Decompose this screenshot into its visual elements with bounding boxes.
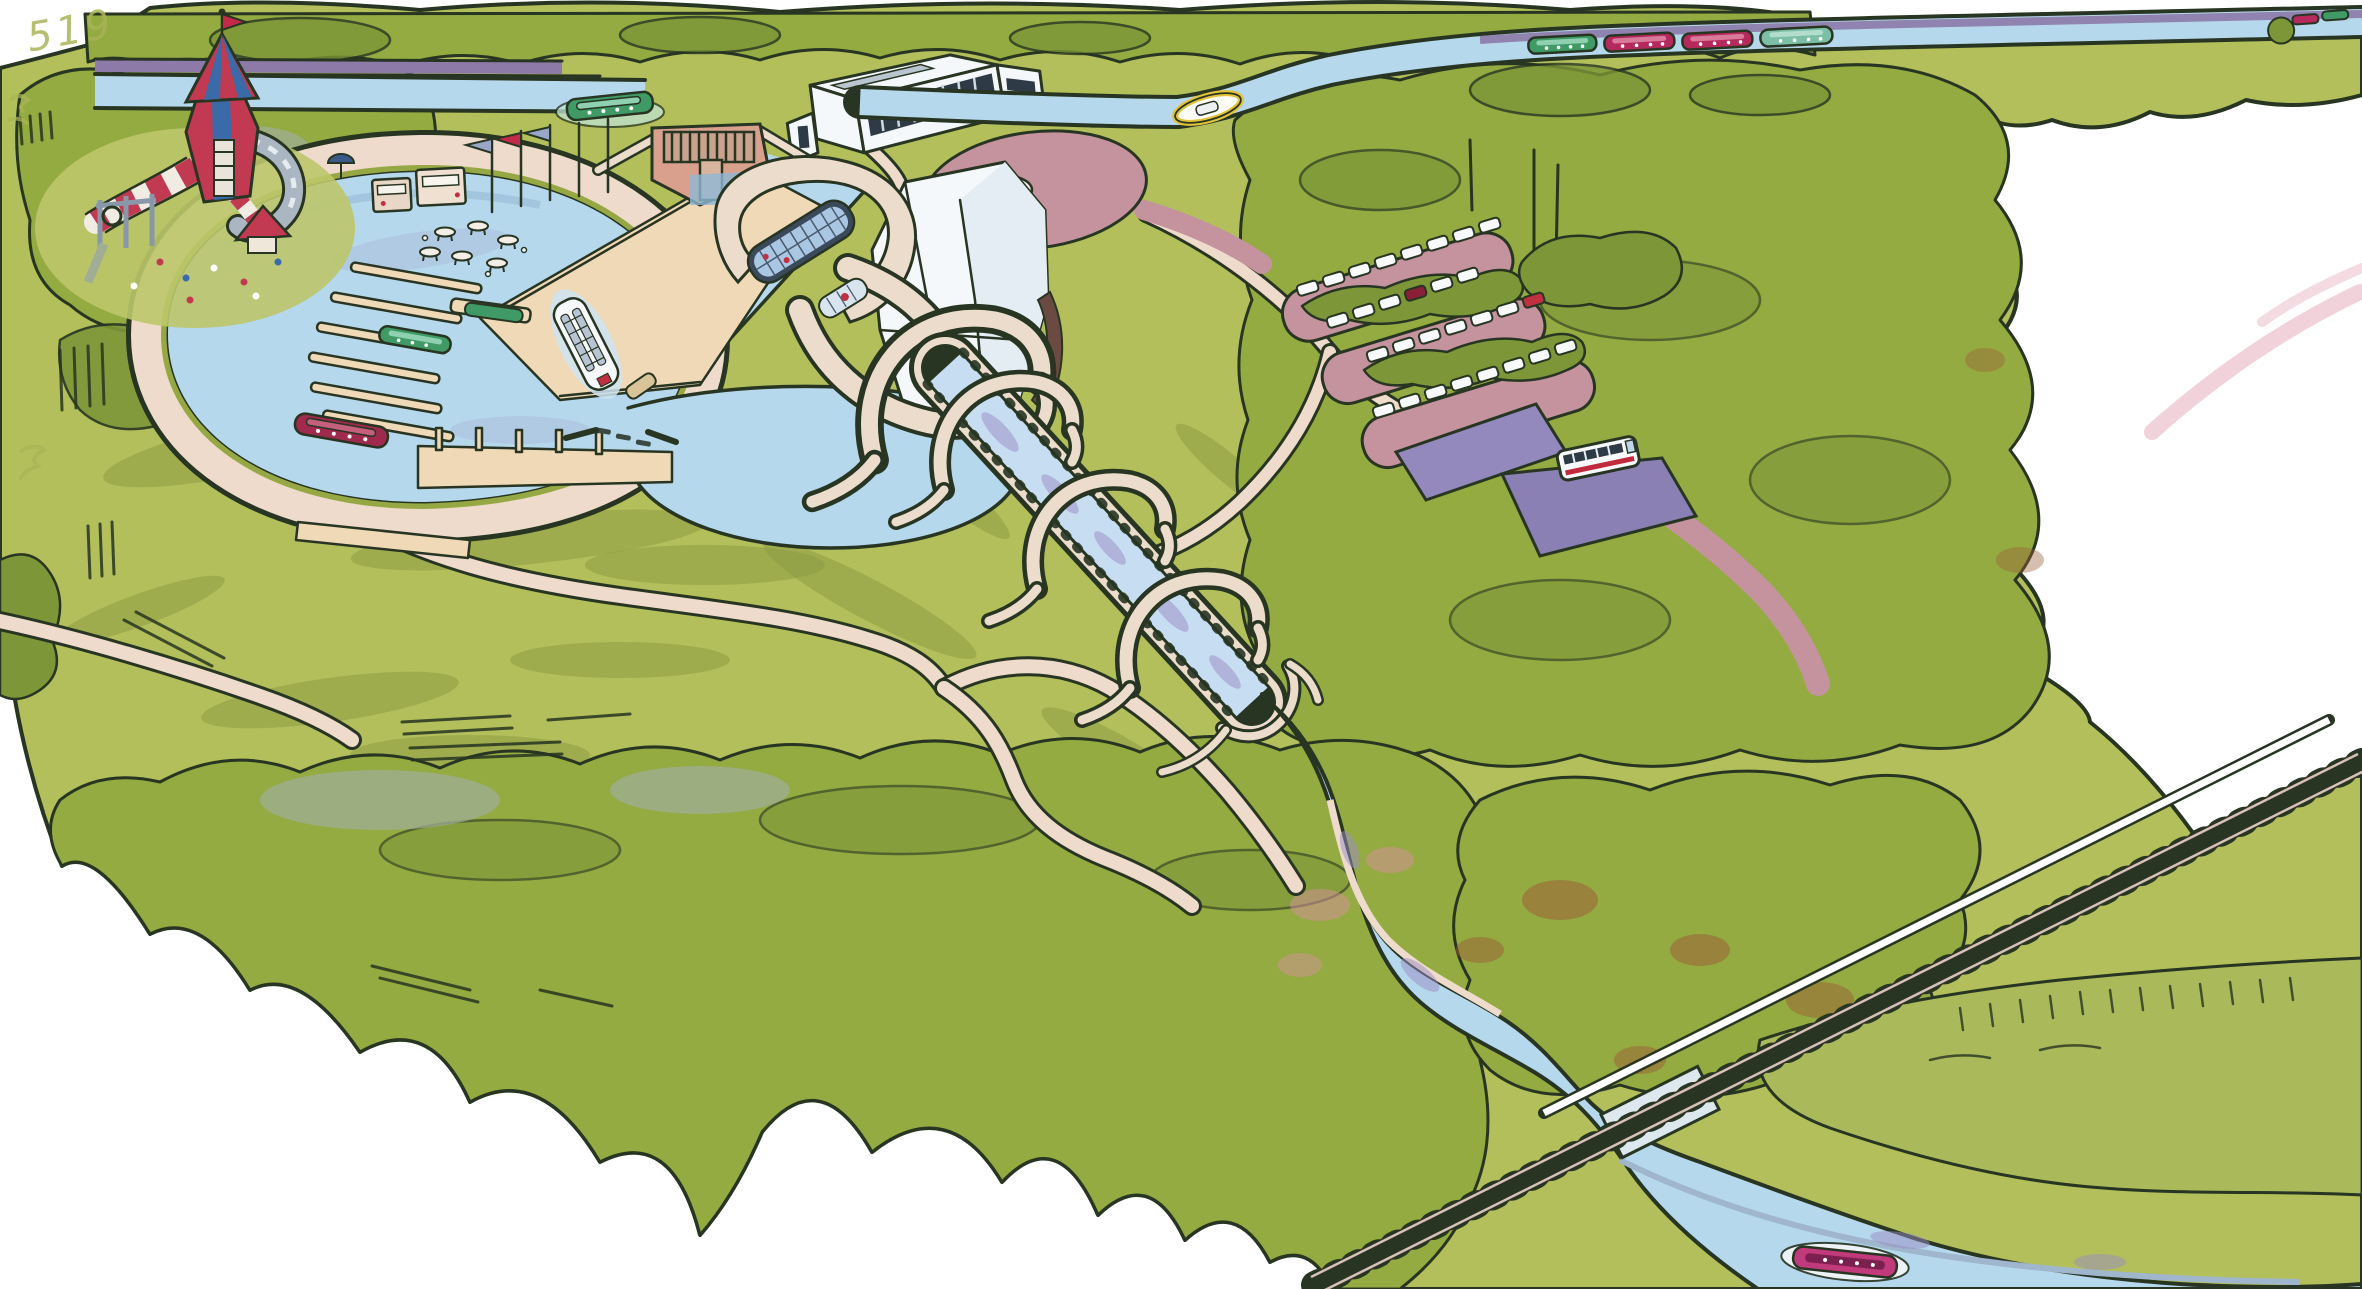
pink-streaks: [2152, 268, 2362, 432]
illustration-canvas: 519: [0, 0, 2362, 1289]
aerial-illustration: 519: [0, 0, 2362, 1289]
